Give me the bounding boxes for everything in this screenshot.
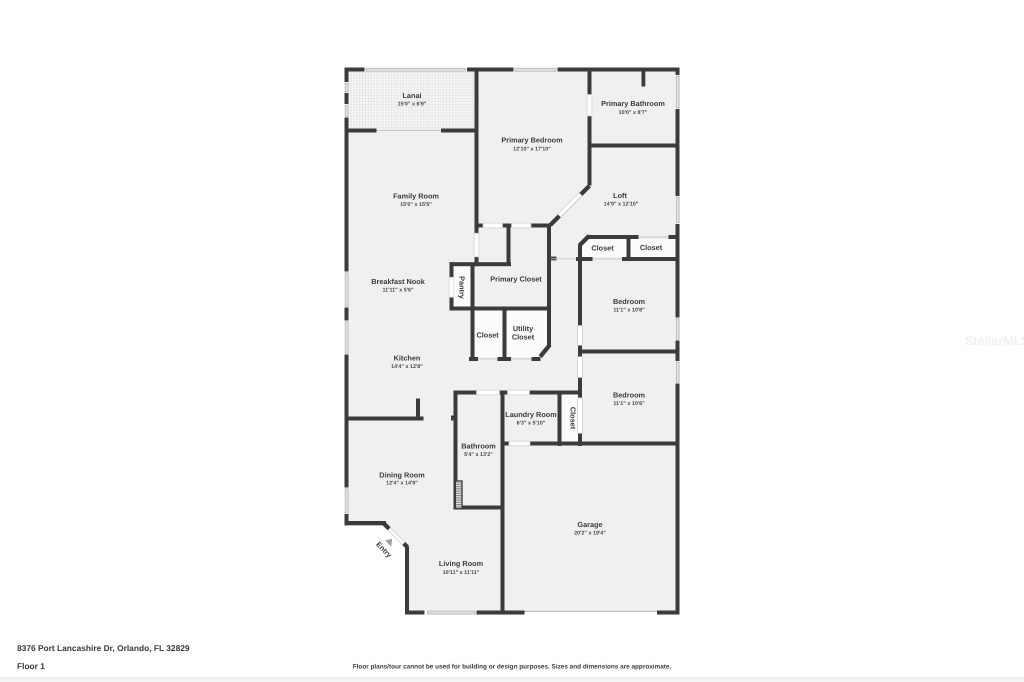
svg-text:11'1" x 10'8": 11'1" x 10'8" [613,308,645,314]
svg-text:8376 Port Lancashire Dr, Orlan: 8376 Port Lancashire Dr, Orlando, FL 328… [17,643,190,653]
svg-text:Kitchen: Kitchen [394,354,421,363]
svg-text:Primary Closet: Primary Closet [490,274,542,283]
svg-text:Lanai: Lanai [402,91,421,100]
svg-text:5'4" x 13'2": 5'4" x 13'2" [464,452,493,458]
svg-text:15'0" x 6'9": 15'0" x 6'9" [398,102,427,108]
svg-text:14'9" x 12'10": 14'9" x 12'10" [604,202,639,208]
svg-text:Garage: Garage [577,520,602,529]
svg-text:Laundry Room: Laundry Room [505,410,557,419]
svg-text:11'1" x 10'6": 11'1" x 10'6" [613,401,645,407]
svg-text:Closet: Closet [476,331,499,340]
svg-text:11'11" x 5'6": 11'11" x 5'6" [382,288,414,294]
svg-text:StellarMLS: StellarMLS [965,334,1024,348]
svg-text:Closet: Closet [591,244,614,253]
svg-text:Closet: Closet [640,243,663,252]
svg-text:20'2" x 19'4": 20'2" x 19'4" [574,531,606,537]
svg-text:15'0" x 15'5": 15'0" x 15'5" [400,202,432,208]
svg-text:Family Room: Family Room [393,192,439,201]
svg-text:Primary Bathroom: Primary Bathroom [601,99,665,108]
svg-text:Closet: Closet [512,333,535,342]
svg-text:Bedroom: Bedroom [613,391,646,400]
svg-text:14'4" x 12'8": 14'4" x 12'8" [391,364,423,370]
svg-text:Dining Room: Dining Room [379,470,425,479]
svg-text:Breakfast Nook: Breakfast Nook [371,277,425,286]
svg-text:10'0" x 8'7": 10'0" x 8'7" [619,110,648,116]
svg-text:10'11" x 11'11": 10'11" x 11'11" [443,570,480,576]
svg-text:Bedroom: Bedroom [613,297,646,306]
svg-text:Primary Bedroom: Primary Bedroom [501,136,563,145]
svg-text:Pantry: Pantry [458,276,467,300]
svg-text:12'10" x 17'10": 12'10" x 17'10" [513,147,551,153]
svg-text:Bathroom: Bathroom [461,442,496,451]
svg-text:Living Room: Living Room [439,559,484,568]
svg-text:12'4" x 14'9": 12'4" x 14'9" [386,481,418,487]
svg-text:Floor 1: Floor 1 [17,661,45,671]
svg-text:Closet: Closet [569,407,578,430]
svg-text:Floor plans/tour cannot be use: Floor plans/tour cannot be used for buil… [353,664,672,671]
svg-text:6'3" x 5'10": 6'3" x 5'10" [517,421,546,427]
svg-text:Loft: Loft [613,191,627,200]
